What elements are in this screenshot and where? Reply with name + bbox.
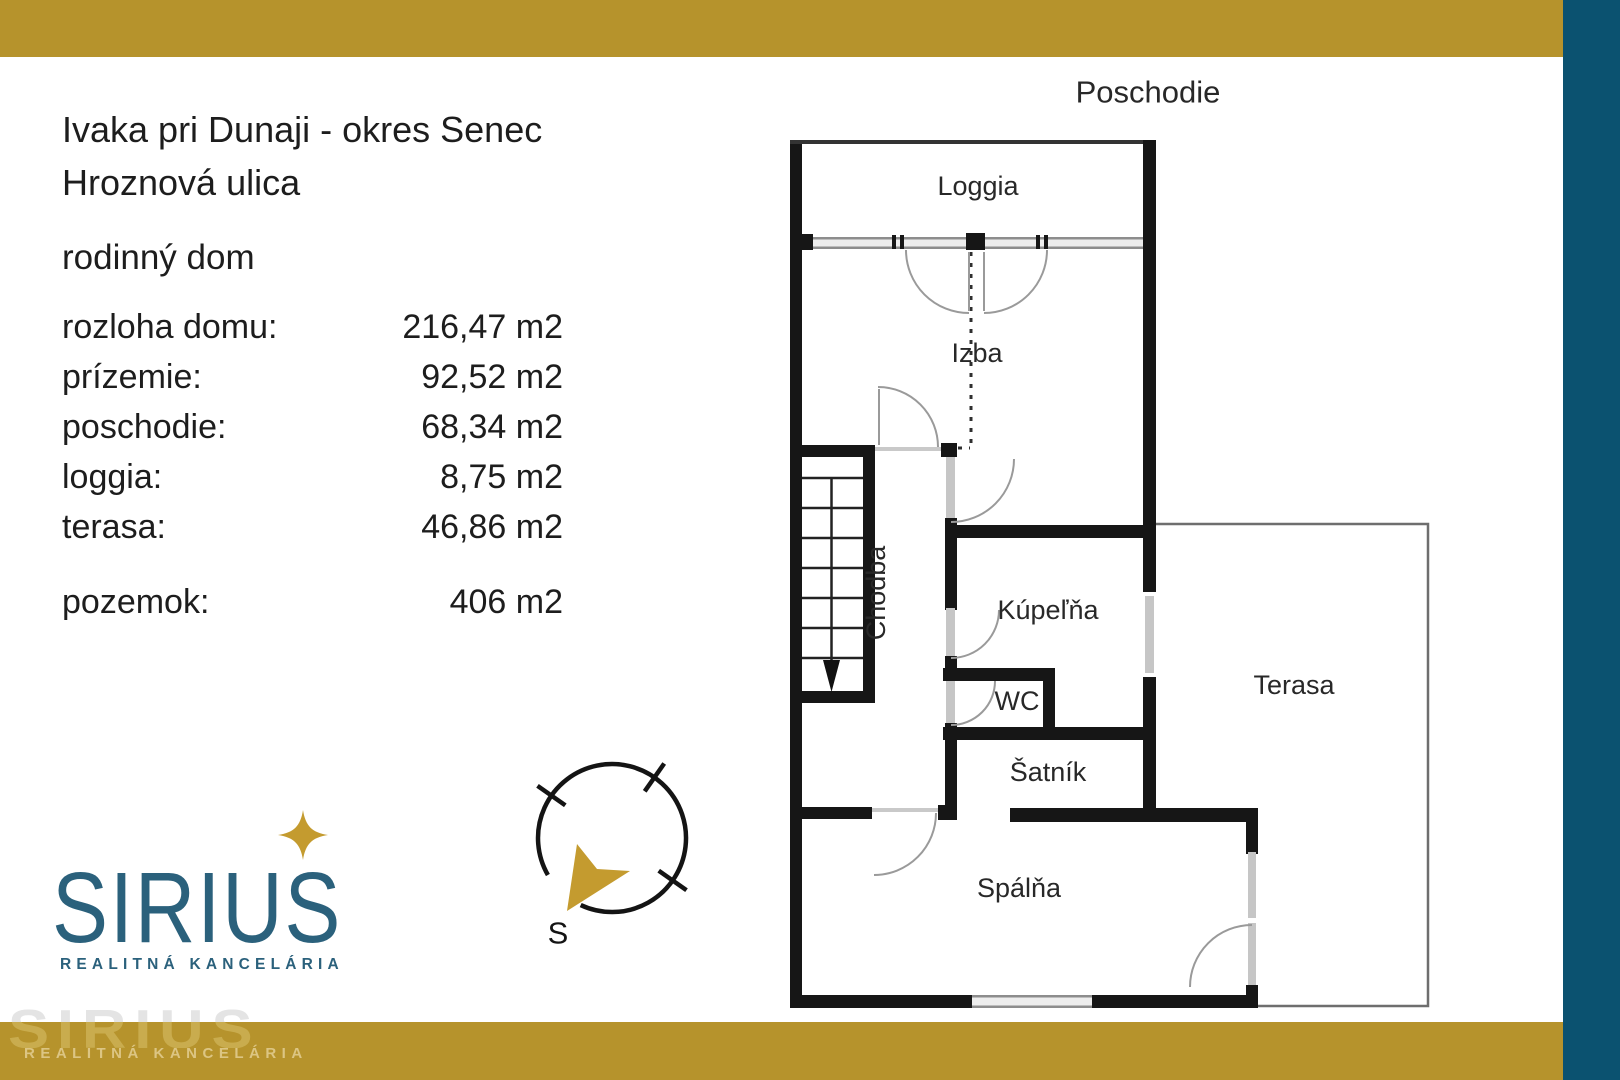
location-line2: Hroznová ulica [62,156,682,209]
property-details-table: rozloha domu: 216,47 m2 prízemie: 92,52 … [62,302,563,627]
detail-label: terasa: [62,508,166,547]
detail-value: 92,52 m2 [421,358,563,397]
listing-location: Ivaka pri Dunaji - okres Senec Hroznová … [62,103,682,209]
detail-value: 8,75 m2 [440,458,563,497]
property-type: rodinný dom [62,238,255,278]
table-row: terasa: 46,86 m2 [62,502,563,552]
room-label-loggia: Loggia [937,171,1019,201]
plan-title: Poschodie [1076,75,1221,110]
staircase [802,478,863,660]
location-line1: Ivaka pri Dunaji - okres Senec [62,103,682,156]
detail-value: 68,34 m2 [421,408,563,447]
detail-label: rozloha domu: [62,308,277,347]
detail-value: 406 m2 [450,583,563,622]
floor-plan-labels: Poschodie Loggia Izba Chodba Kúpeľňa WC … [861,75,1336,904]
table-row: loggia: 8,75 m2 [62,452,563,502]
compass-south-label: S [548,916,569,951]
detail-value: 216,47 m2 [402,308,563,347]
room-label-izba: Izba [951,338,1003,368]
detail-label: prízemie: [62,358,202,397]
room-label-kupelna: Kúpeľňa [998,595,1100,625]
table-row: rozloha domu: 216,47 m2 [62,302,563,352]
sirius-logo-tagline: REALITNÁ KANCELÁRIA [60,956,344,974]
compass-arrow-icon [567,844,630,911]
compass-icon: S [538,764,687,951]
detail-label: poschodie: [62,408,226,447]
right-teal-bar [1563,0,1620,1080]
sparkle-star-icon [268,800,338,870]
room-label-chodba: Chodba [861,545,891,641]
compass-circle [538,764,686,912]
detail-label: loggia: [62,458,162,497]
table-row: prízemie: 92,52 m2 [62,352,563,402]
detail-label: pozemok: [62,583,209,622]
room-label-terasa: Terasa [1253,670,1335,700]
stairs-down-arrow [823,660,840,692]
room-label-satnik: Šatník [1010,756,1087,787]
terasa-outline [1156,524,1428,1006]
table-row: poschodie: 68,34 m2 [62,402,563,452]
room-label-spalna: Spálňa [977,873,1062,903]
table-row: pozemok: 406 m2 [62,577,563,627]
watermark-tagline: REALITNÁ KANCELÁRIA [24,1045,308,1062]
detail-value: 46,86 m2 [421,508,563,547]
room-label-wc: WC [995,686,1040,716]
top-gold-bar [0,0,1563,57]
